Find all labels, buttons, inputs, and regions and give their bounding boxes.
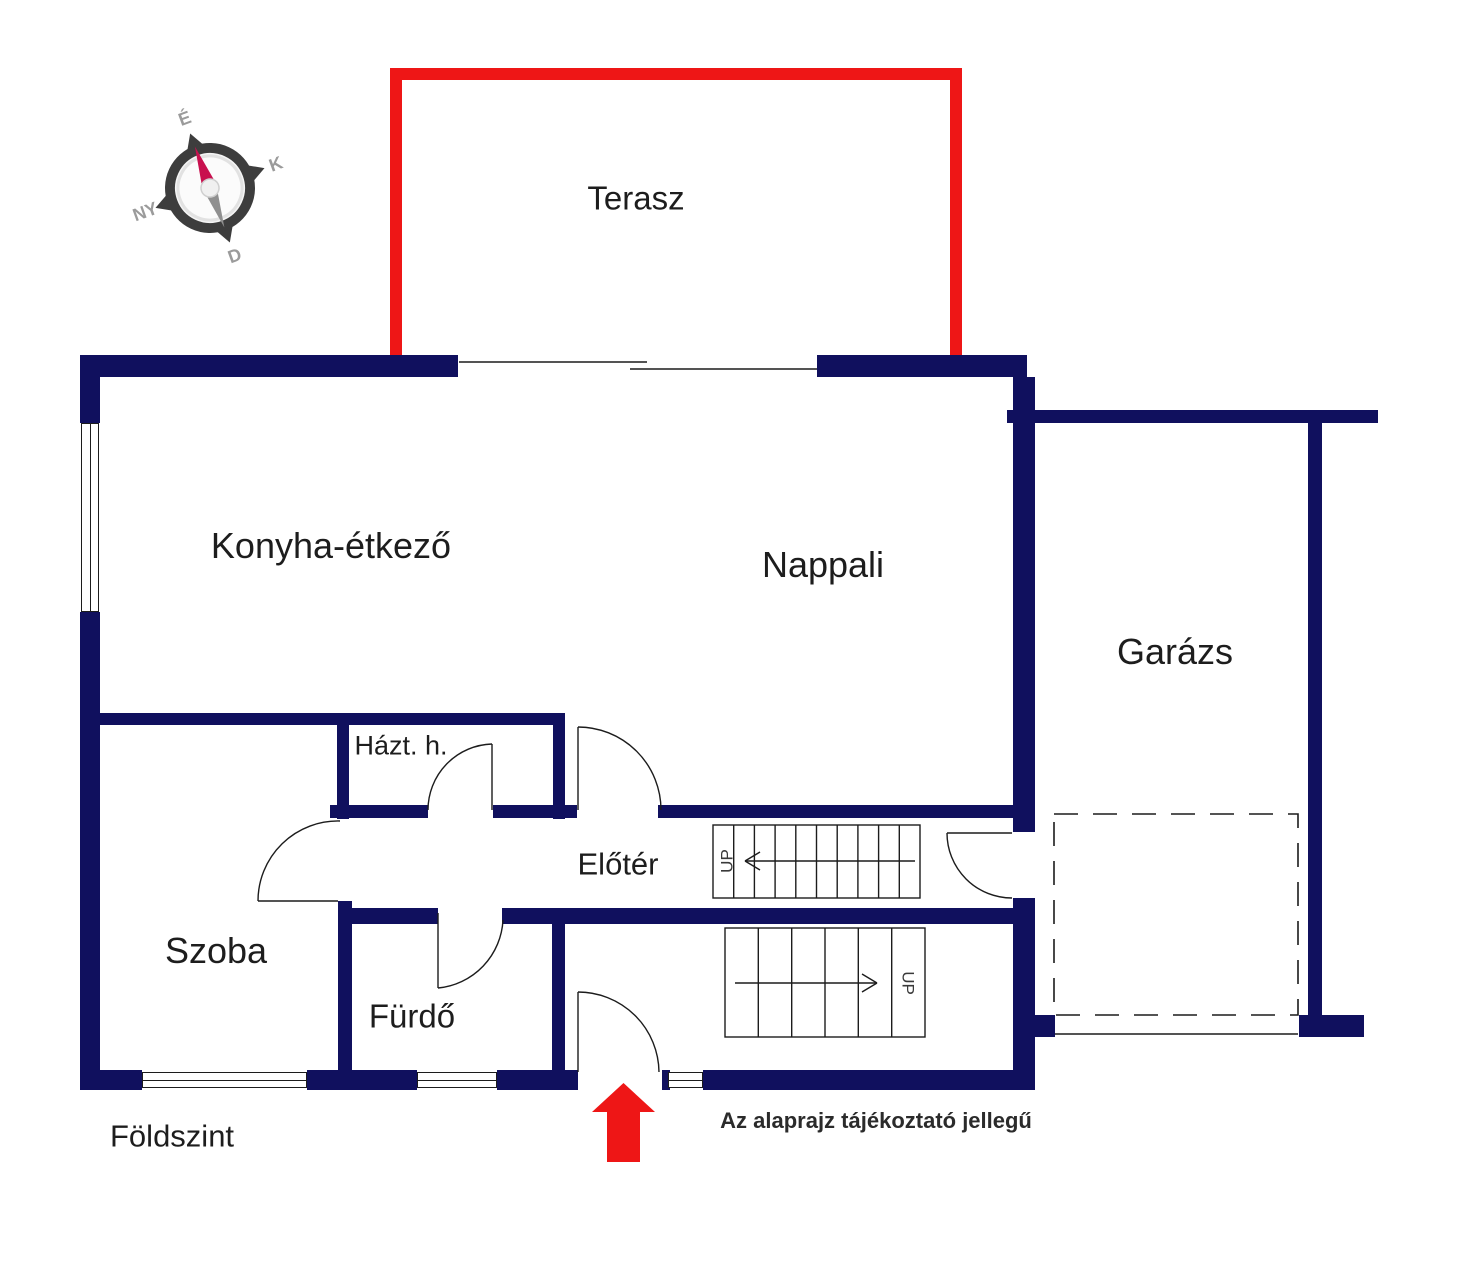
stairs-lower: UP [725, 928, 925, 1037]
room-label-konyha: Konyha-étkező [211, 528, 451, 564]
door-room [258, 821, 340, 901]
floor-plan: UP UP [0, 0, 1464, 1280]
compass-label-north: É [175, 106, 193, 130]
room-label-szoba: Szoba [165, 933, 267, 969]
compass-label-west: NY [130, 198, 160, 225]
room-label-eloter: Előtér [578, 849, 659, 880]
room-label-nappali: Nappali [762, 547, 884, 583]
door-bathroom [438, 913, 503, 988]
room-label-terasz: Terasz [587, 182, 684, 215]
compass-icon: É K D NY [125, 100, 295, 270]
disclaimer-text: Az alaprajz tájékoztató jellegű [720, 1110, 1032, 1132]
stairs-upper: UP [713, 825, 920, 898]
entrance-arrow-icon [592, 1083, 655, 1162]
compass-label-south: D [225, 244, 244, 267]
compass-label-east: K [266, 152, 285, 175]
door-hall-living [578, 727, 661, 810]
stairs-up-label: UP [718, 849, 737, 873]
floor-title: Földszint [110, 1121, 234, 1152]
room-label-hazt: Házt. h. [354, 733, 447, 760]
garage-door-dashed [1054, 814, 1298, 1034]
room-label-garazs: Garázs [1117, 634, 1233, 670]
door-garage [947, 833, 1012, 898]
door-entrance [578, 992, 659, 1072]
room-label-furdo: Fürdő [369, 1000, 455, 1033]
stairs-up-label: UP [899, 971, 918, 995]
sliding-door [459, 362, 817, 369]
